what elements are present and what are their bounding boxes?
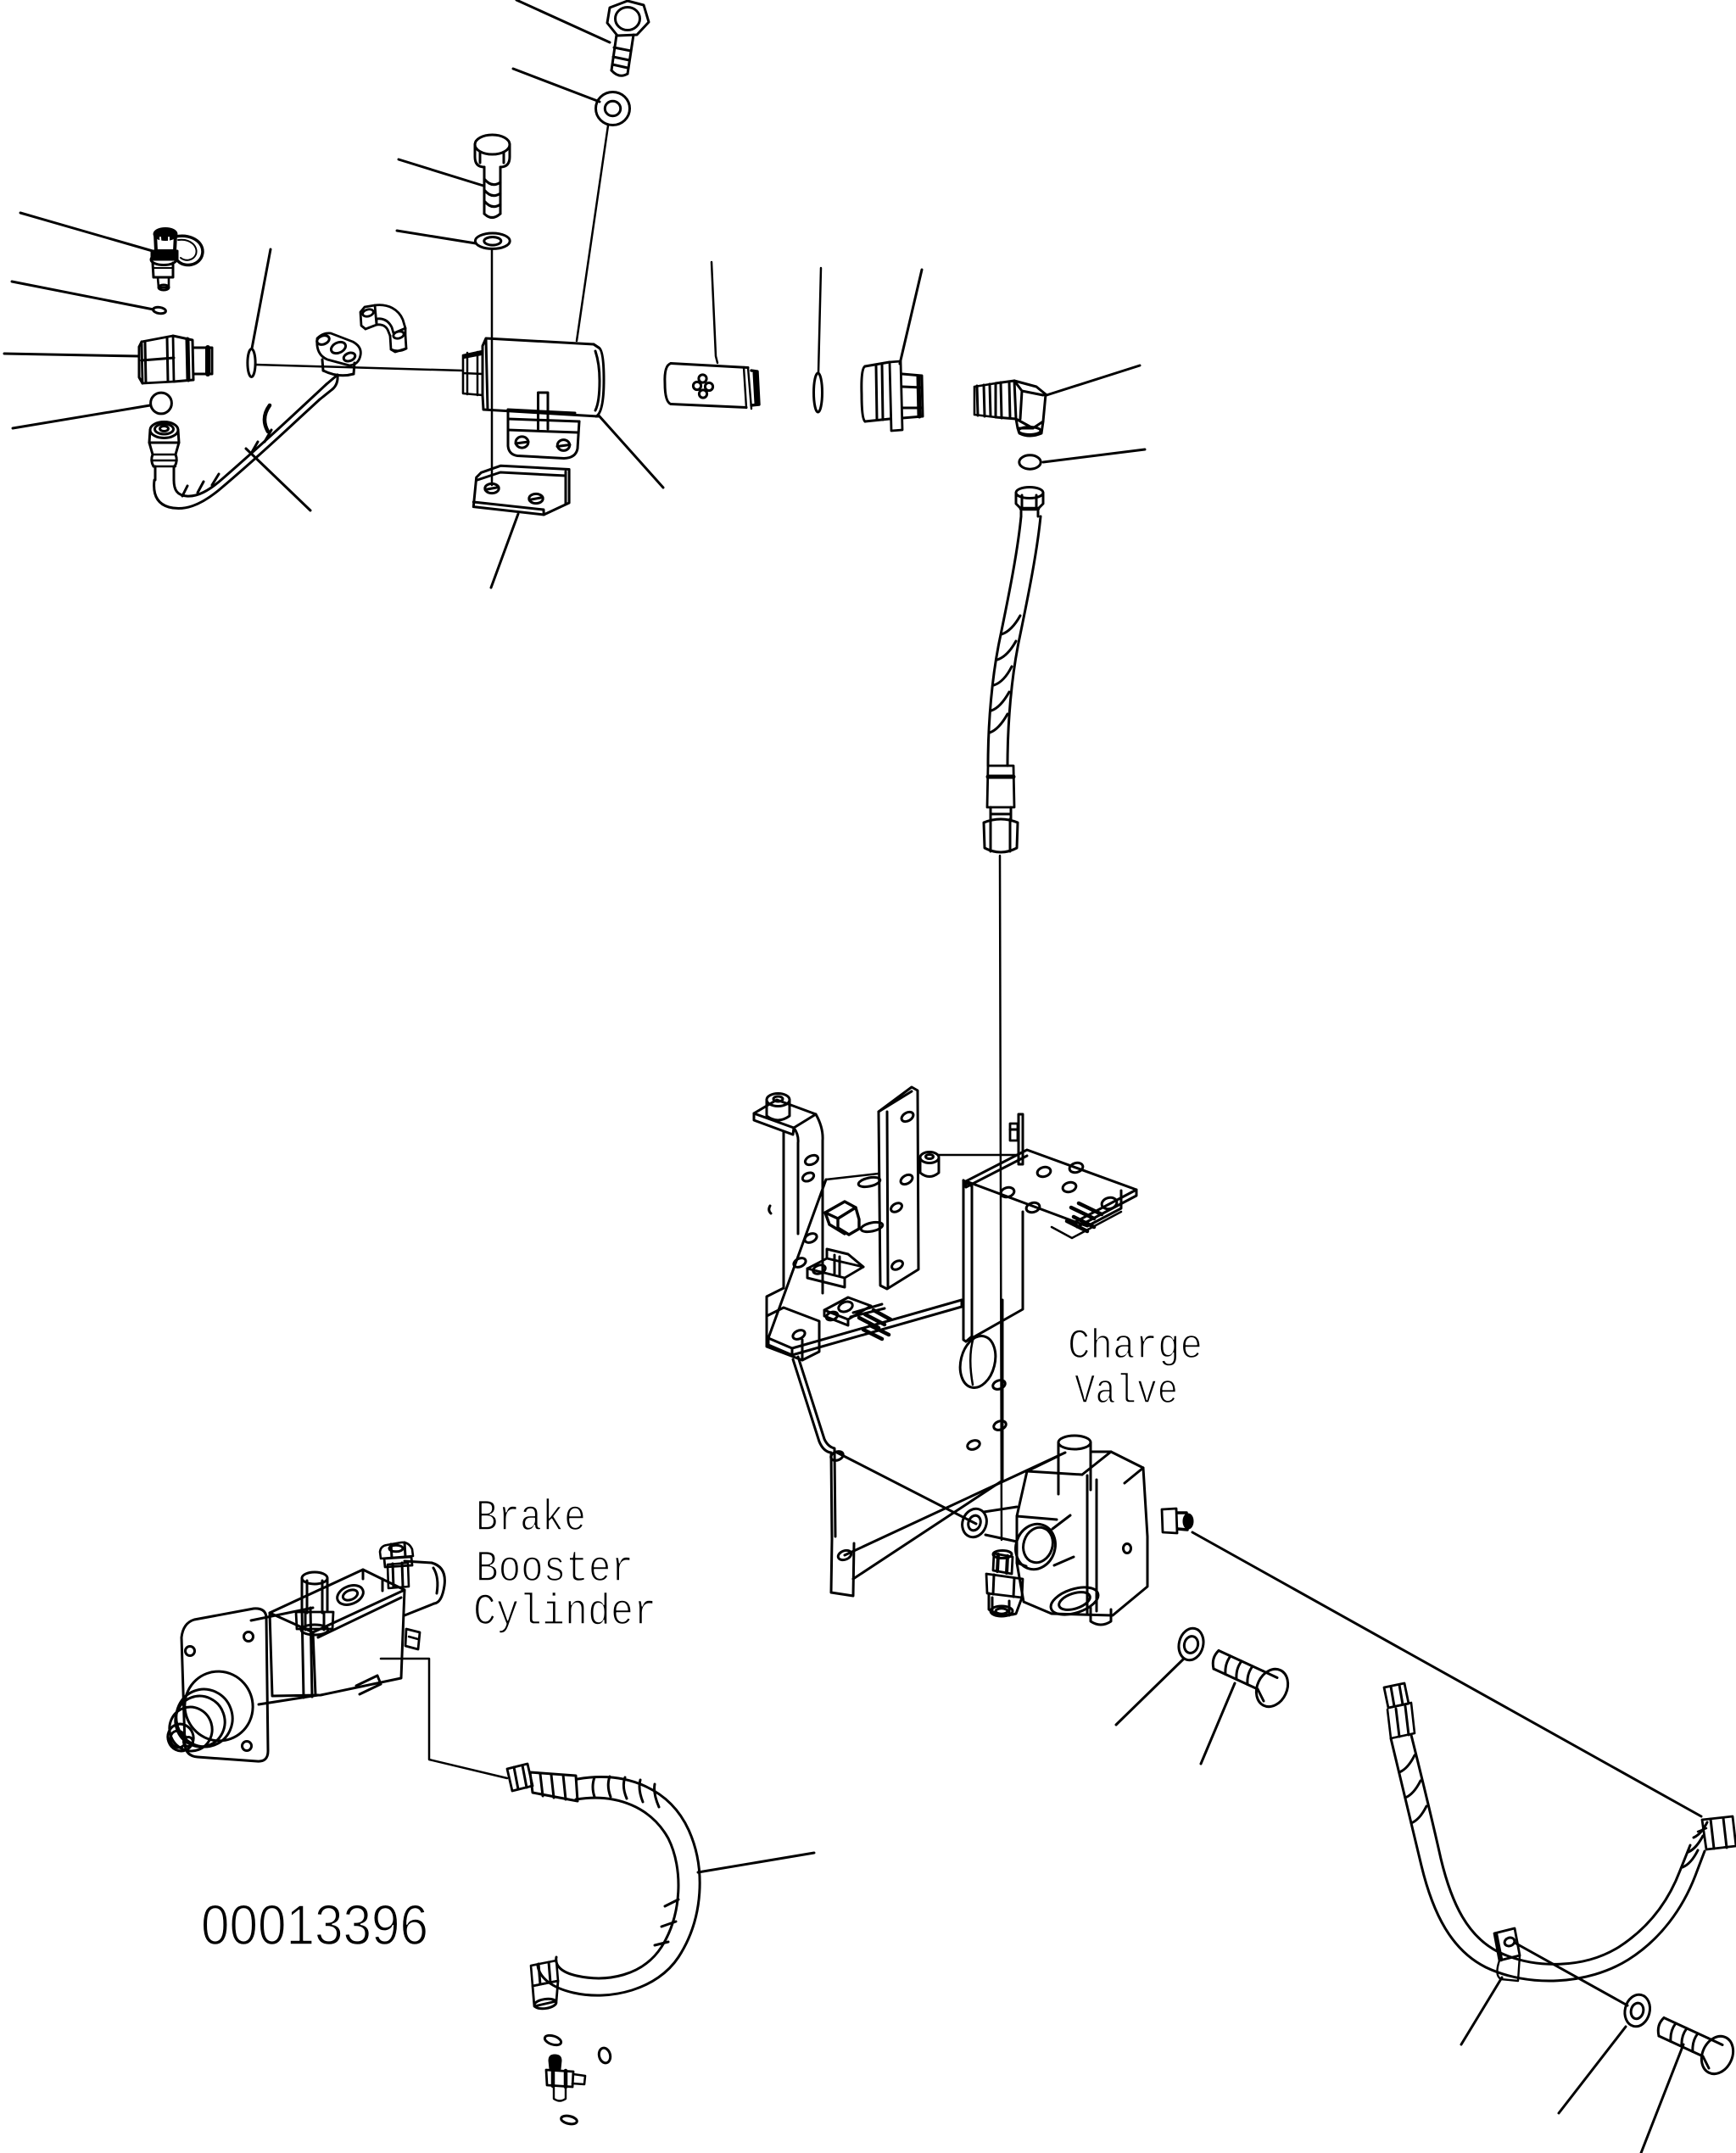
svg-text:Brake: Brake (476, 1493, 586, 1543)
svg-text:Valve: Valve (1075, 1368, 1178, 1415)
svg-text:00013396: 00013396 (201, 1894, 428, 1957)
svg-text:Cylinder: Cylinder (473, 1587, 656, 1637)
svg-text:Charge: Charge (1068, 1323, 1203, 1370)
